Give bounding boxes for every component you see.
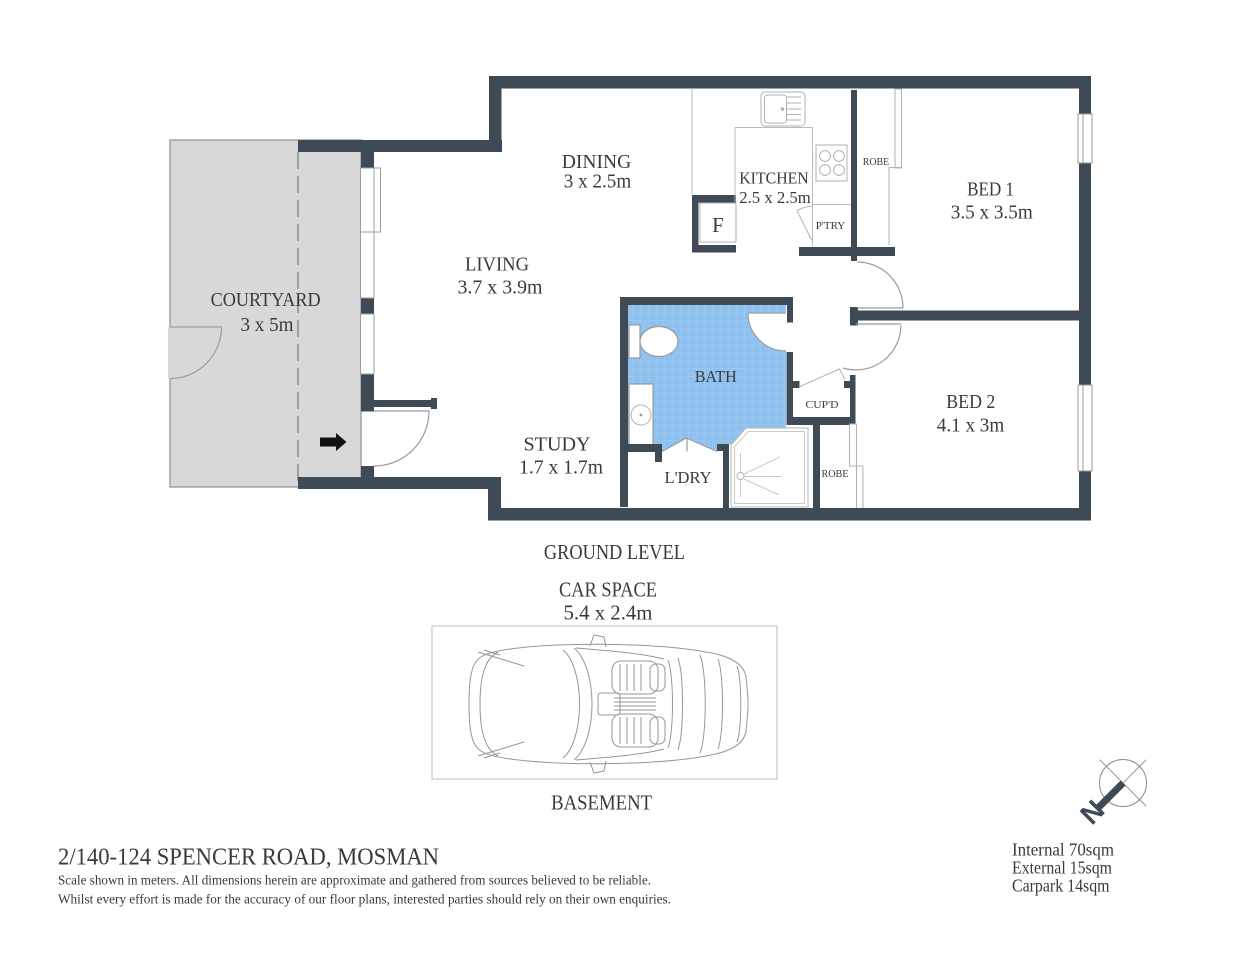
svg-text:ROBE: ROBE xyxy=(863,156,890,168)
svg-text:COURTYARD: COURTYARD xyxy=(211,289,321,311)
svg-text:3 x 5m: 3 x 5m xyxy=(241,314,294,336)
svg-text:P'TRY: P'TRY xyxy=(816,220,846,232)
svg-text:Internal 70sqm: Internal 70sqm xyxy=(1012,840,1114,860)
svg-text:3.7 x 3.9m: 3.7 x 3.9m xyxy=(458,277,543,299)
svg-text:STUDY: STUDY xyxy=(524,434,591,456)
svg-text:Carpark 14sqm: Carpark 14sqm xyxy=(1012,876,1110,896)
svg-text:LIVING: LIVING xyxy=(465,254,529,276)
svg-text:GROUND LEVEL: GROUND LEVEL xyxy=(544,540,685,564)
svg-text:1.7 x 1.7m: 1.7 x 1.7m xyxy=(519,457,603,479)
svg-text:External 15sqm: External 15sqm xyxy=(1012,858,1112,878)
svg-text:BATH: BATH xyxy=(695,367,737,386)
svg-text:Whilst every effort is made fo: Whilst every effort is made for the accu… xyxy=(58,892,671,907)
svg-text:2.5 x 2.5m: 2.5 x 2.5m xyxy=(739,188,811,207)
svg-text:KITCHEN: KITCHEN xyxy=(739,169,809,188)
svg-text:ROBE: ROBE xyxy=(822,468,849,480)
svg-text:3.5 x 3.5m: 3.5 x 3.5m xyxy=(951,202,1033,224)
svg-text:BED 1: BED 1 xyxy=(967,179,1014,201)
svg-text:4.1 x 3m: 4.1 x 3m xyxy=(937,415,1005,437)
svg-text:2/140-124 SPENCER ROAD, MOSMAN: 2/140-124 SPENCER ROAD, MOSMAN xyxy=(58,844,439,871)
svg-text:F: F xyxy=(712,213,724,237)
svg-text:L'DRY: L'DRY xyxy=(665,468,712,487)
svg-text:BED 2: BED 2 xyxy=(946,391,995,413)
svg-text:5.4 x 2.4m: 5.4 x 2.4m xyxy=(564,601,653,625)
svg-text:BASEMENT: BASEMENT xyxy=(551,791,652,815)
svg-text:CAR SPACE: CAR SPACE xyxy=(559,578,657,602)
svg-text:Scale shown in meters. All dim: Scale shown in meters. All dimensions he… xyxy=(58,873,651,888)
svg-text:CUP'D: CUP'D xyxy=(806,399,839,411)
svg-text:3 x 2.5m: 3 x 2.5m xyxy=(564,171,632,193)
